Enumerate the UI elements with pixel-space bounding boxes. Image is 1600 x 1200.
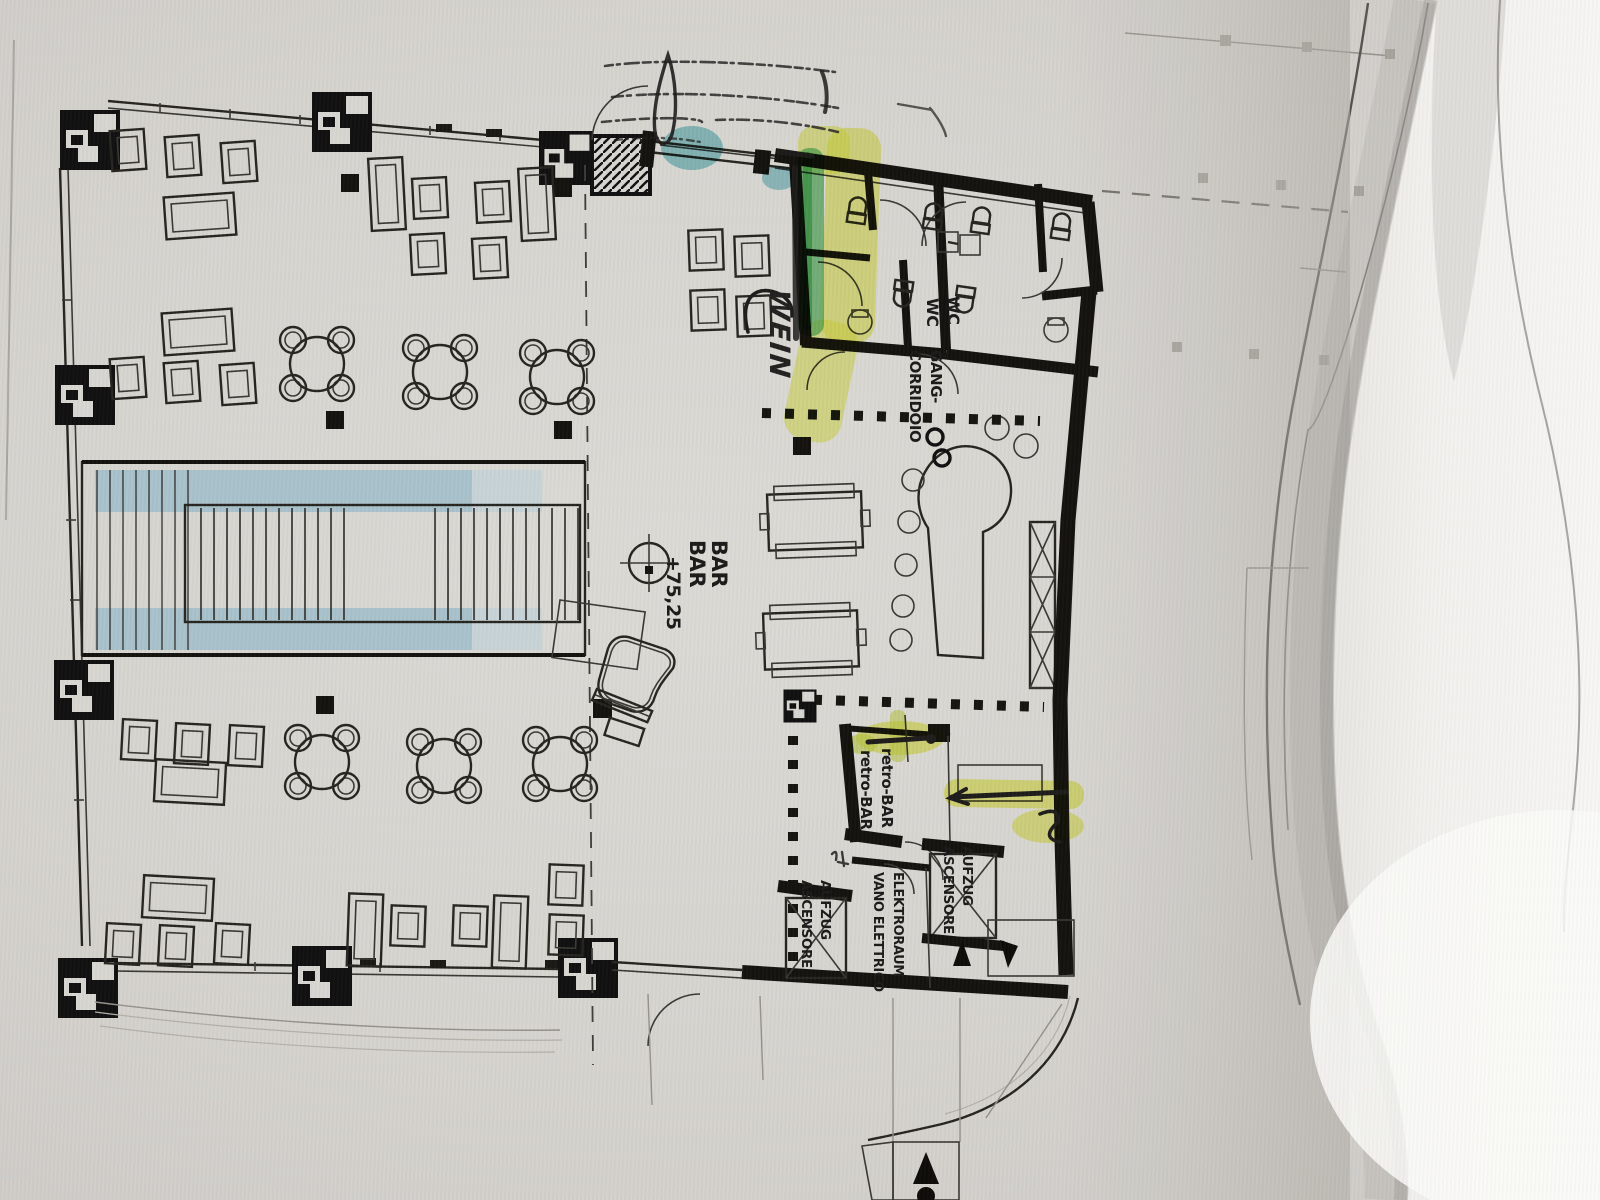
underlying-paper [1310,0,1600,1200]
label-retrobar-2: retro-BAR [857,750,875,831]
label-electrical-1: ELEKTRORAUM [890,872,905,977]
label-bar-level: +75,25 [662,556,684,630]
pen-tiny-note [832,852,848,866]
label-corridor-2: CORRIDOIO [906,350,924,442]
label-electrical-2: VANO ELETTRICO [870,872,885,992]
grand-staircase [82,462,645,669]
label-bar-2: BAR [685,540,709,587]
handwritten-wein: WEIN [763,287,796,380]
highlighter-marks [661,126,1084,843]
label-bar-1: BAR [707,540,731,587]
grand-piano-icon [584,632,678,749]
label-corridor-1: GANG- [927,350,945,403]
label-elev-right-2: ASCENSORE [940,846,956,934]
label-elev-left-1: AUFZUG [817,880,833,940]
bar-counter [919,446,1012,658]
label-wc-2: WC [923,298,942,327]
label-elev-right-1: AUFZUG [959,846,975,906]
paper-left-edge [6,40,14,520]
label-elev-left-2: ASCENSORE [798,880,814,968]
highlight-teal-blob [661,126,723,170]
pen-loop [654,55,675,144]
label-wc-1: WC [944,296,963,325]
floor-plan-canvas: BAR BAR +75,25 WC WC GANG- CORRIDOIO ret… [0,0,1600,1200]
floor-plan-photo: BAR BAR +75,25 WC WC GANG- CORRIDOIO ret… [0,0,1600,1200]
